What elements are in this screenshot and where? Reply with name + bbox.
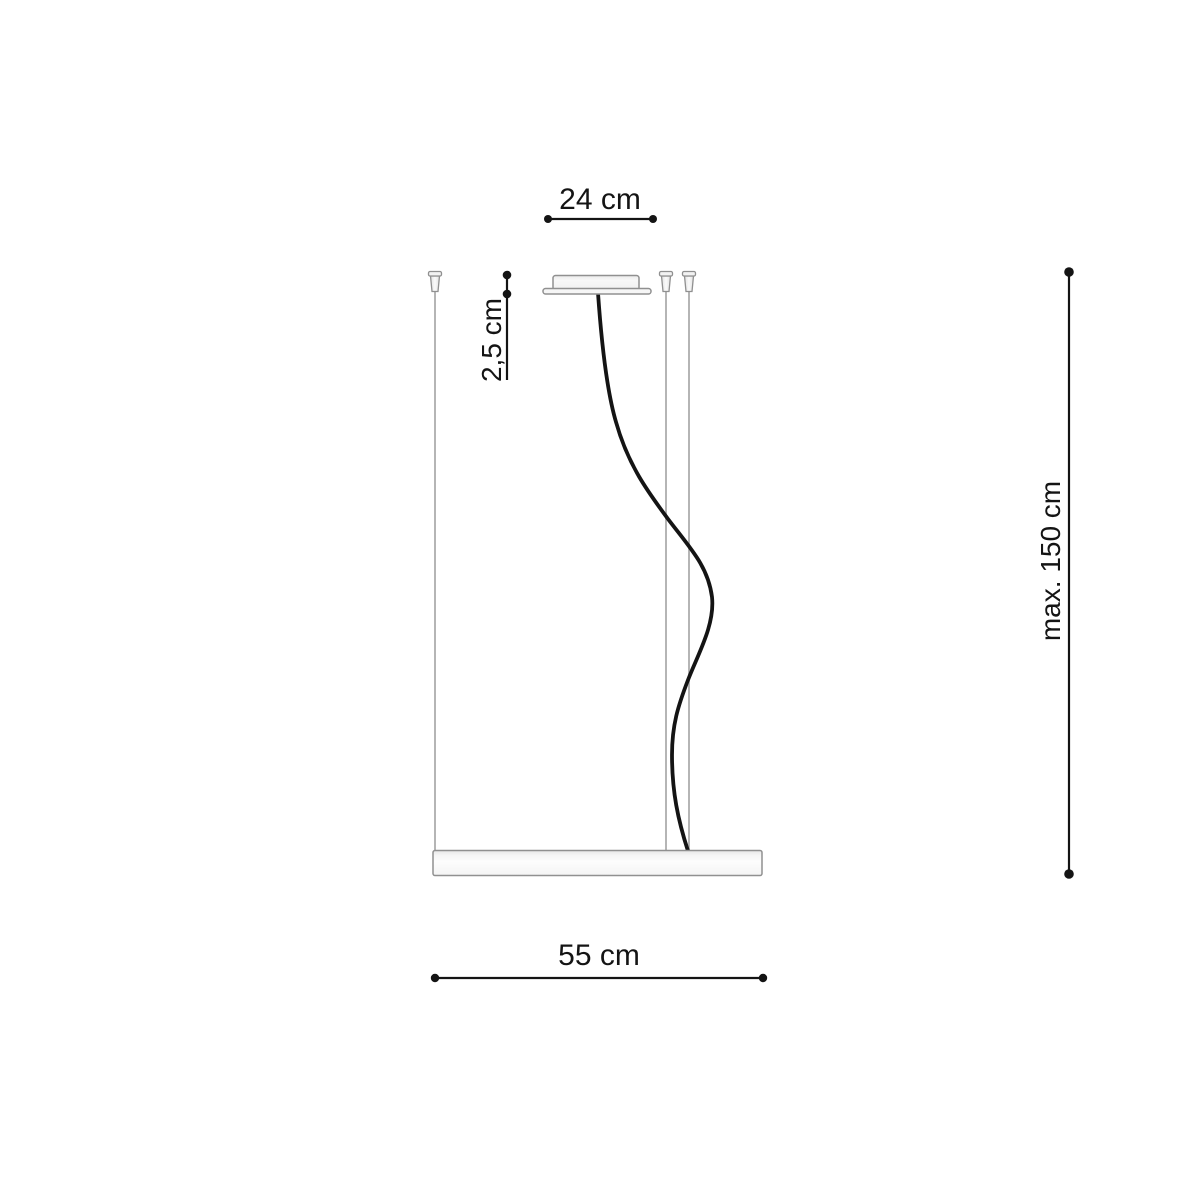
dimension-endpoint-dot — [431, 974, 439, 982]
gripper-cap — [429, 272, 442, 277]
fixture-width-label: 55 cm — [519, 941, 679, 971]
suspension-wires — [435, 291, 689, 851]
max-drop-label: max. 150 cm — [1036, 471, 1066, 651]
gripper-cap — [660, 272, 673, 277]
ceiling-canopy — [543, 276, 651, 295]
dimension-endpoint-dot — [503, 271, 512, 280]
wire-gripper-right-2 — [683, 272, 696, 292]
canopy-width-label: 24 cm — [520, 185, 680, 215]
dimension-endpoint-dot — [1064, 869, 1074, 879]
gripper-body — [685, 276, 694, 292]
dimension-endpoint-dot — [759, 974, 767, 982]
dimension-fixture-width — [431, 974, 767, 982]
gripper-body — [431, 276, 440, 292]
dimension-endpoint-dot — [1064, 267, 1074, 277]
canopy-height-label: 2,5 cm — [477, 280, 507, 400]
diagram-drawing — [0, 0, 1200, 1200]
gripper-body — [662, 276, 671, 292]
power-cable — [598, 293, 712, 851]
wire-gripper-left — [429, 272, 442, 292]
canopy-flange — [543, 289, 651, 295]
gripper-cap — [683, 272, 696, 277]
dimension-endpoint-dot — [649, 215, 657, 223]
dimension-canopy-width — [544, 215, 657, 223]
lamp-bar — [433, 851, 762, 876]
wire-gripper-right-1 — [660, 272, 673, 292]
pendant-lamp-dimension-diagram: 24 cm 2,5 cm max. 150 cm 55 cm — [0, 0, 1200, 1200]
dimension-endpoint-dot — [544, 215, 552, 223]
